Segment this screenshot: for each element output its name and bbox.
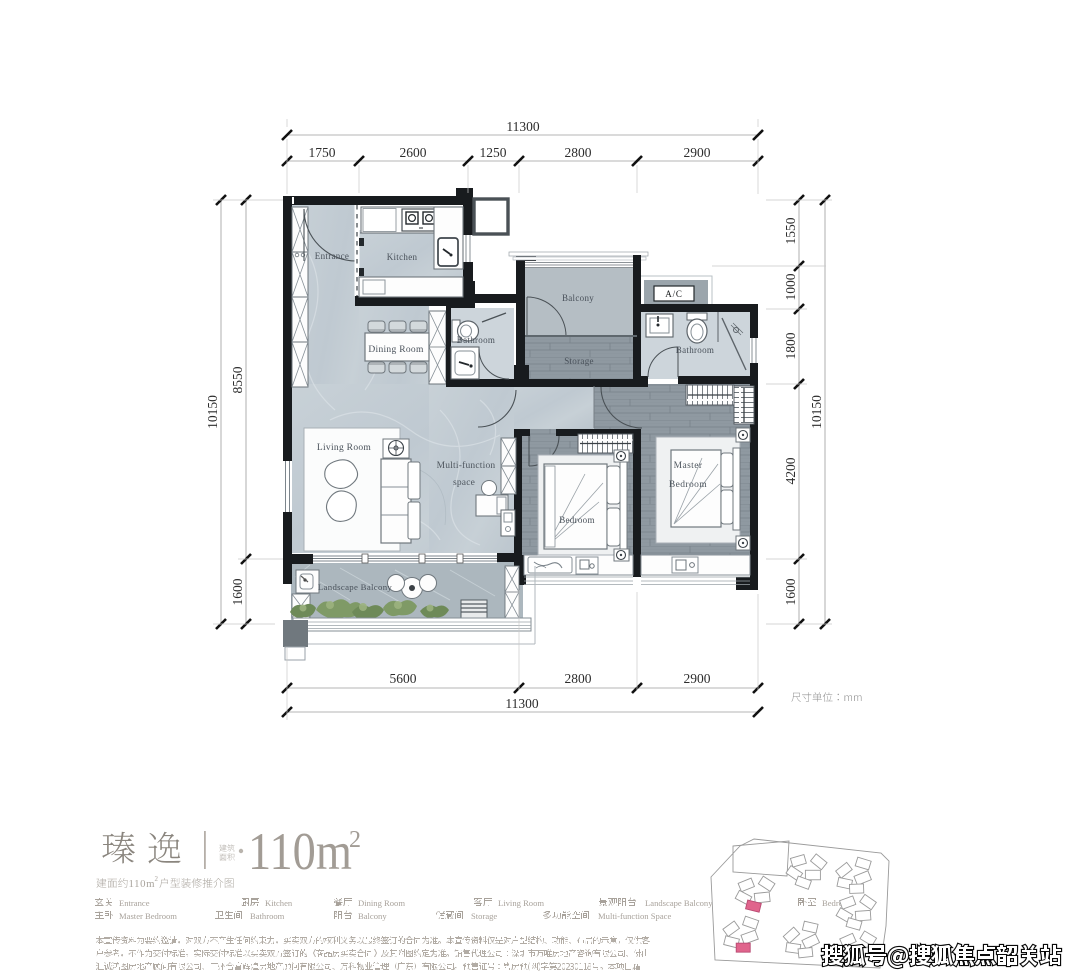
svg-text:Storage: Storage (564, 356, 594, 366)
svg-text:1550: 1550 (783, 217, 798, 244)
svg-text:2900: 2900 (684, 145, 711, 160)
svg-text:Entrance: Entrance (119, 898, 150, 908)
svg-text:Living Room: Living Room (498, 898, 544, 908)
svg-text:Entrance: Entrance (315, 251, 349, 261)
svg-text:Storage: Storage (471, 911, 497, 921)
svg-text:10150: 10150 (205, 395, 220, 429)
svg-text:110m: 110m (129, 878, 156, 890)
svg-text:Landscape Balcony: Landscape Balcony (645, 898, 713, 908)
svg-text:2: 2 (349, 827, 361, 853)
svg-text:Dining Room: Dining Room (368, 345, 424, 355)
svg-text:2900: 2900 (684, 671, 711, 686)
svg-text:Dining Room: Dining Room (358, 898, 405, 908)
svg-text:1750: 1750 (309, 145, 336, 160)
svg-text:Bathroom: Bathroom (676, 345, 714, 355)
svg-text:Master: Master (674, 461, 703, 471)
svg-text:2600: 2600 (400, 145, 427, 160)
svg-text:10150: 10150 (809, 395, 824, 429)
svg-text:Kitchen: Kitchen (387, 252, 418, 262)
svg-text:11300: 11300 (505, 696, 538, 711)
svg-text:1000: 1000 (783, 273, 798, 300)
svg-text:2800: 2800 (565, 145, 592, 160)
svg-text:1600: 1600 (230, 578, 245, 605)
svg-text:Living Room: Living Room (317, 443, 372, 453)
svg-text:8550: 8550 (230, 366, 245, 393)
svg-text:Bedroom: Bedroom (669, 480, 707, 490)
svg-text:Landscape Balcony: Landscape Balcony (318, 582, 393, 592)
svg-text:5600: 5600 (390, 671, 417, 686)
svg-text:Kitchen: Kitchen (265, 898, 293, 908)
svg-text:1600: 1600 (783, 578, 798, 605)
svg-text:Multi-function: Multi-function (437, 460, 496, 471)
svg-text:4200: 4200 (783, 457, 798, 484)
svg-text:2800: 2800 (565, 671, 592, 686)
svg-text:A/C: A/C (665, 289, 682, 299)
svg-text:Bedroom: Bedroom (559, 515, 595, 525)
svg-text:Bathroom: Bathroom (457, 335, 495, 345)
svg-text:Master Bedroom: Master Bedroom (119, 911, 177, 921)
svg-text:1250: 1250 (480, 145, 507, 160)
svg-text:11300: 11300 (506, 119, 539, 134)
svg-text:110m: 110m (248, 822, 352, 881)
svg-text:Balcony: Balcony (358, 911, 387, 921)
svg-text:Balcony: Balcony (562, 293, 594, 303)
svg-text:1800: 1800 (783, 332, 798, 359)
svg-text:Multi-function Space: Multi-function Space (598, 911, 671, 921)
svg-text:space: space (453, 478, 475, 488)
svg-text:Bathroom: Bathroom (250, 911, 285, 921)
svg-text:2: 2 (155, 875, 159, 883)
